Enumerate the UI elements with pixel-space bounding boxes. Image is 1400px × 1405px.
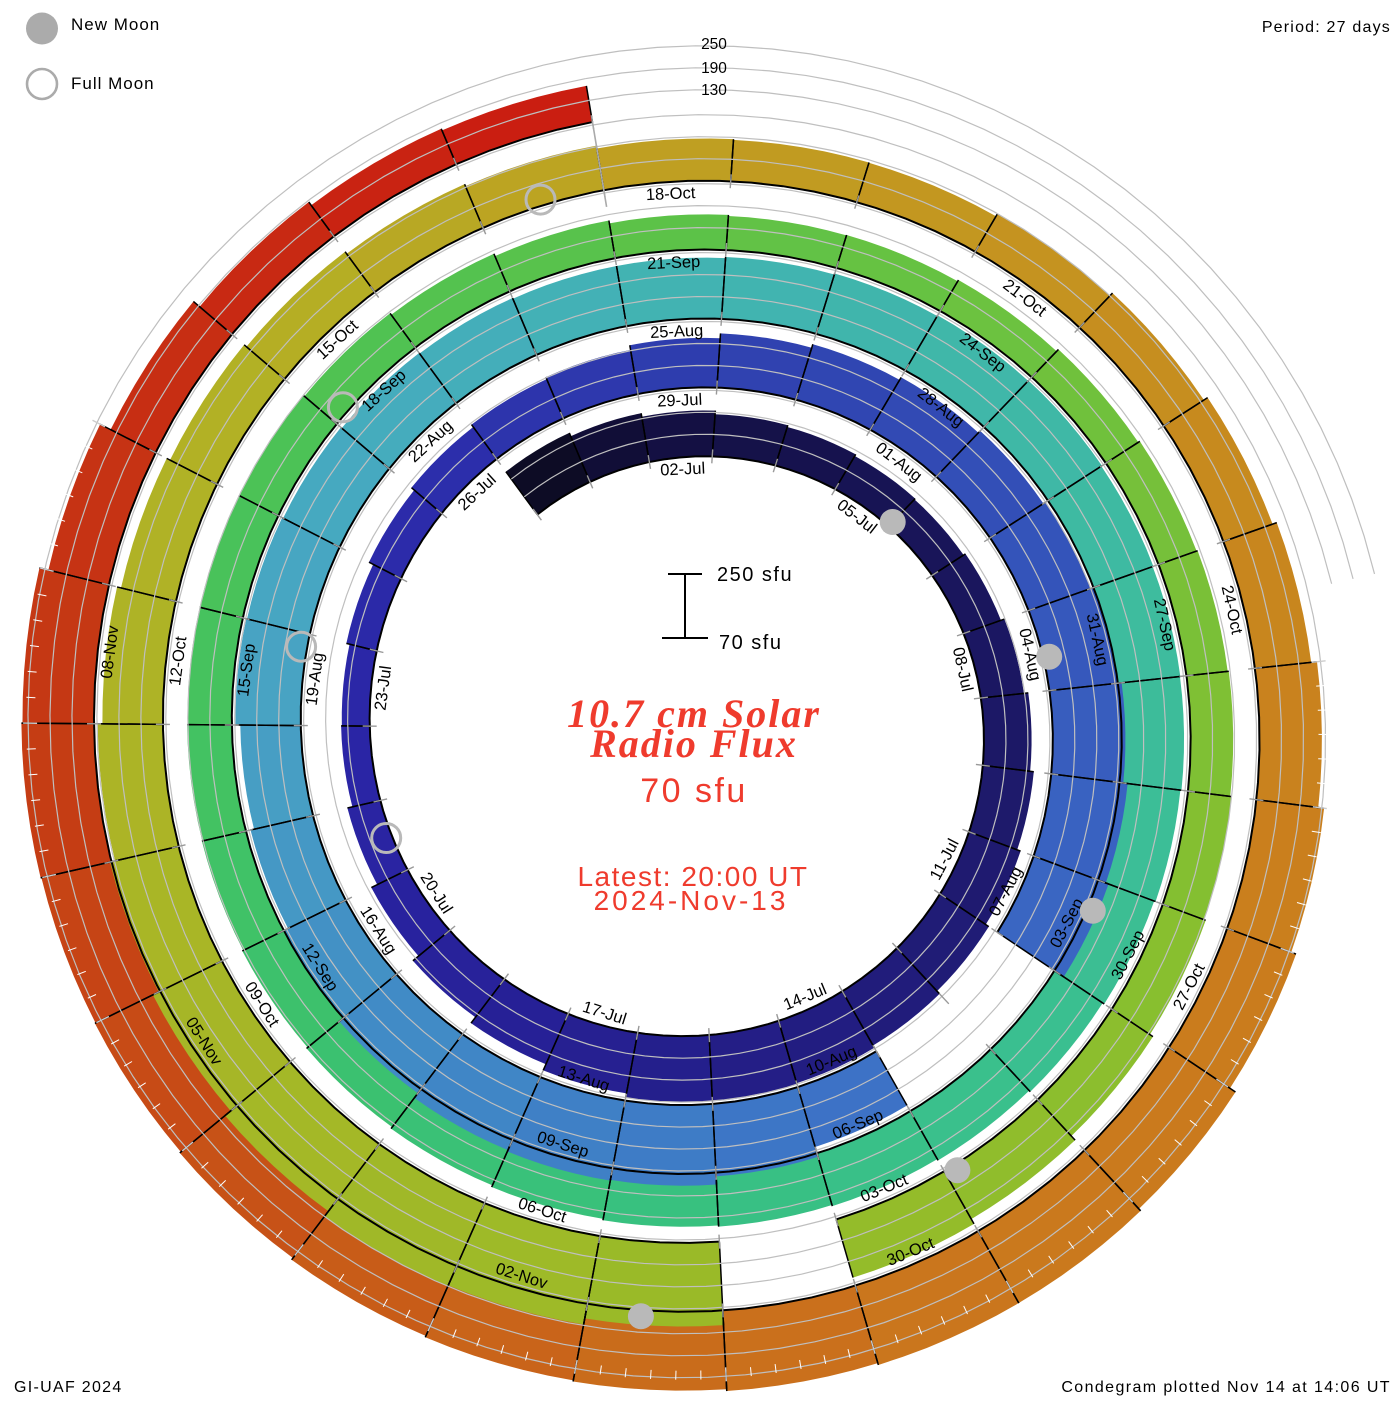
svg-text:Period: 27 days: Period: 27 days: [1262, 19, 1391, 36]
svg-text:New Moon: New Moon: [71, 15, 160, 34]
svg-text:70 sfu: 70 sfu: [640, 772, 748, 810]
svg-text:02-Jul: 02-Jul: [660, 460, 706, 480]
svg-text:21-Sep: 21-Sep: [647, 253, 701, 273]
svg-text:2024-Nov-13: 2024-Nov-13: [594, 885, 789, 916]
svg-text:250: 250: [701, 36, 727, 53]
svg-text:25-Aug: 25-Aug: [650, 322, 704, 342]
svg-text:18-Oct: 18-Oct: [645, 184, 696, 204]
svg-text:130: 130: [701, 82, 727, 99]
svg-text:Radio Flux: Radio Flux: [589, 721, 798, 766]
svg-text:Condegram plotted Nov 14 at 14: Condegram plotted Nov 14 at 14:06 UT: [1061, 1379, 1391, 1396]
svg-text:190: 190: [701, 60, 727, 77]
svg-text:Full Moon: Full Moon: [71, 74, 155, 93]
svg-text:GI-UAF 2024: GI-UAF 2024: [14, 1379, 123, 1396]
svg-text:70 sfu: 70 sfu: [719, 632, 782, 654]
svg-text:250 sfu: 250 sfu: [717, 564, 793, 586]
svg-text:29-Jul: 29-Jul: [657, 391, 703, 411]
